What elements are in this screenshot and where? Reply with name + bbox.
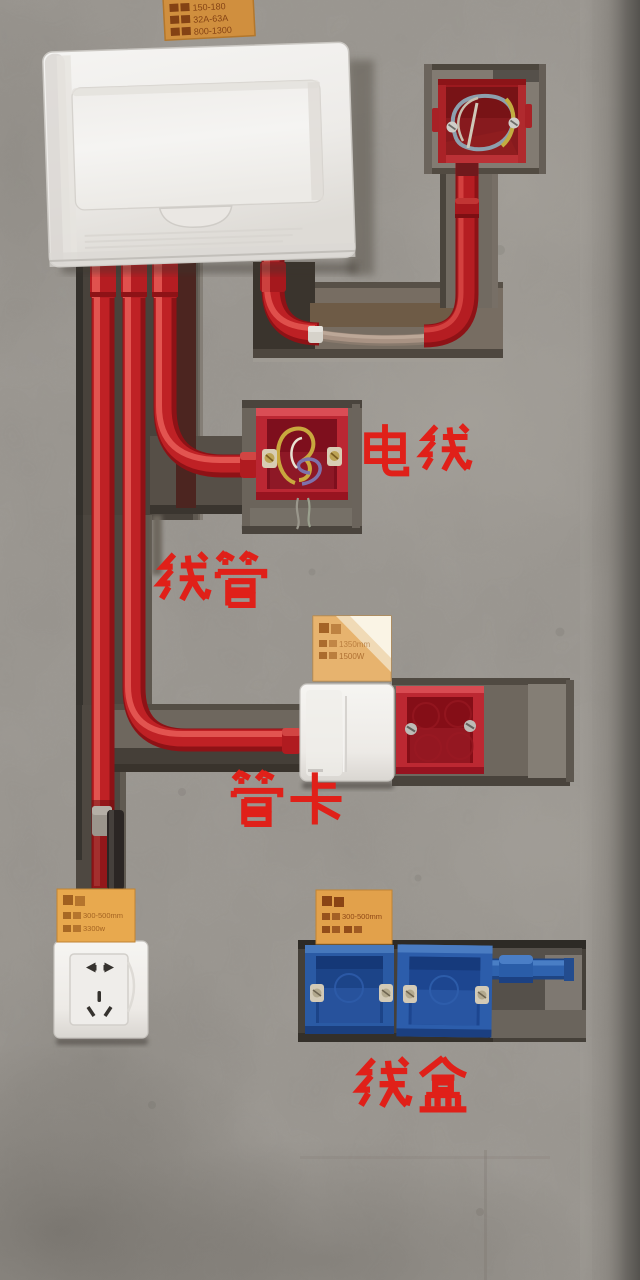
svg-text:300-500mm: 300-500mm: [342, 912, 382, 921]
svg-text:800-1300: 800-1300: [194, 25, 233, 37]
svg-text:1500W: 1500W: [339, 652, 365, 661]
svg-text:32A-63A: 32A-63A: [193, 13, 229, 25]
svg-text:300-500mm: 300-500mm: [83, 911, 123, 920]
svg-text:1350mm: 1350mm: [339, 640, 370, 649]
svg-text:3300w: 3300w: [83, 924, 106, 933]
svg-text:150-180: 150-180: [192, 1, 226, 13]
